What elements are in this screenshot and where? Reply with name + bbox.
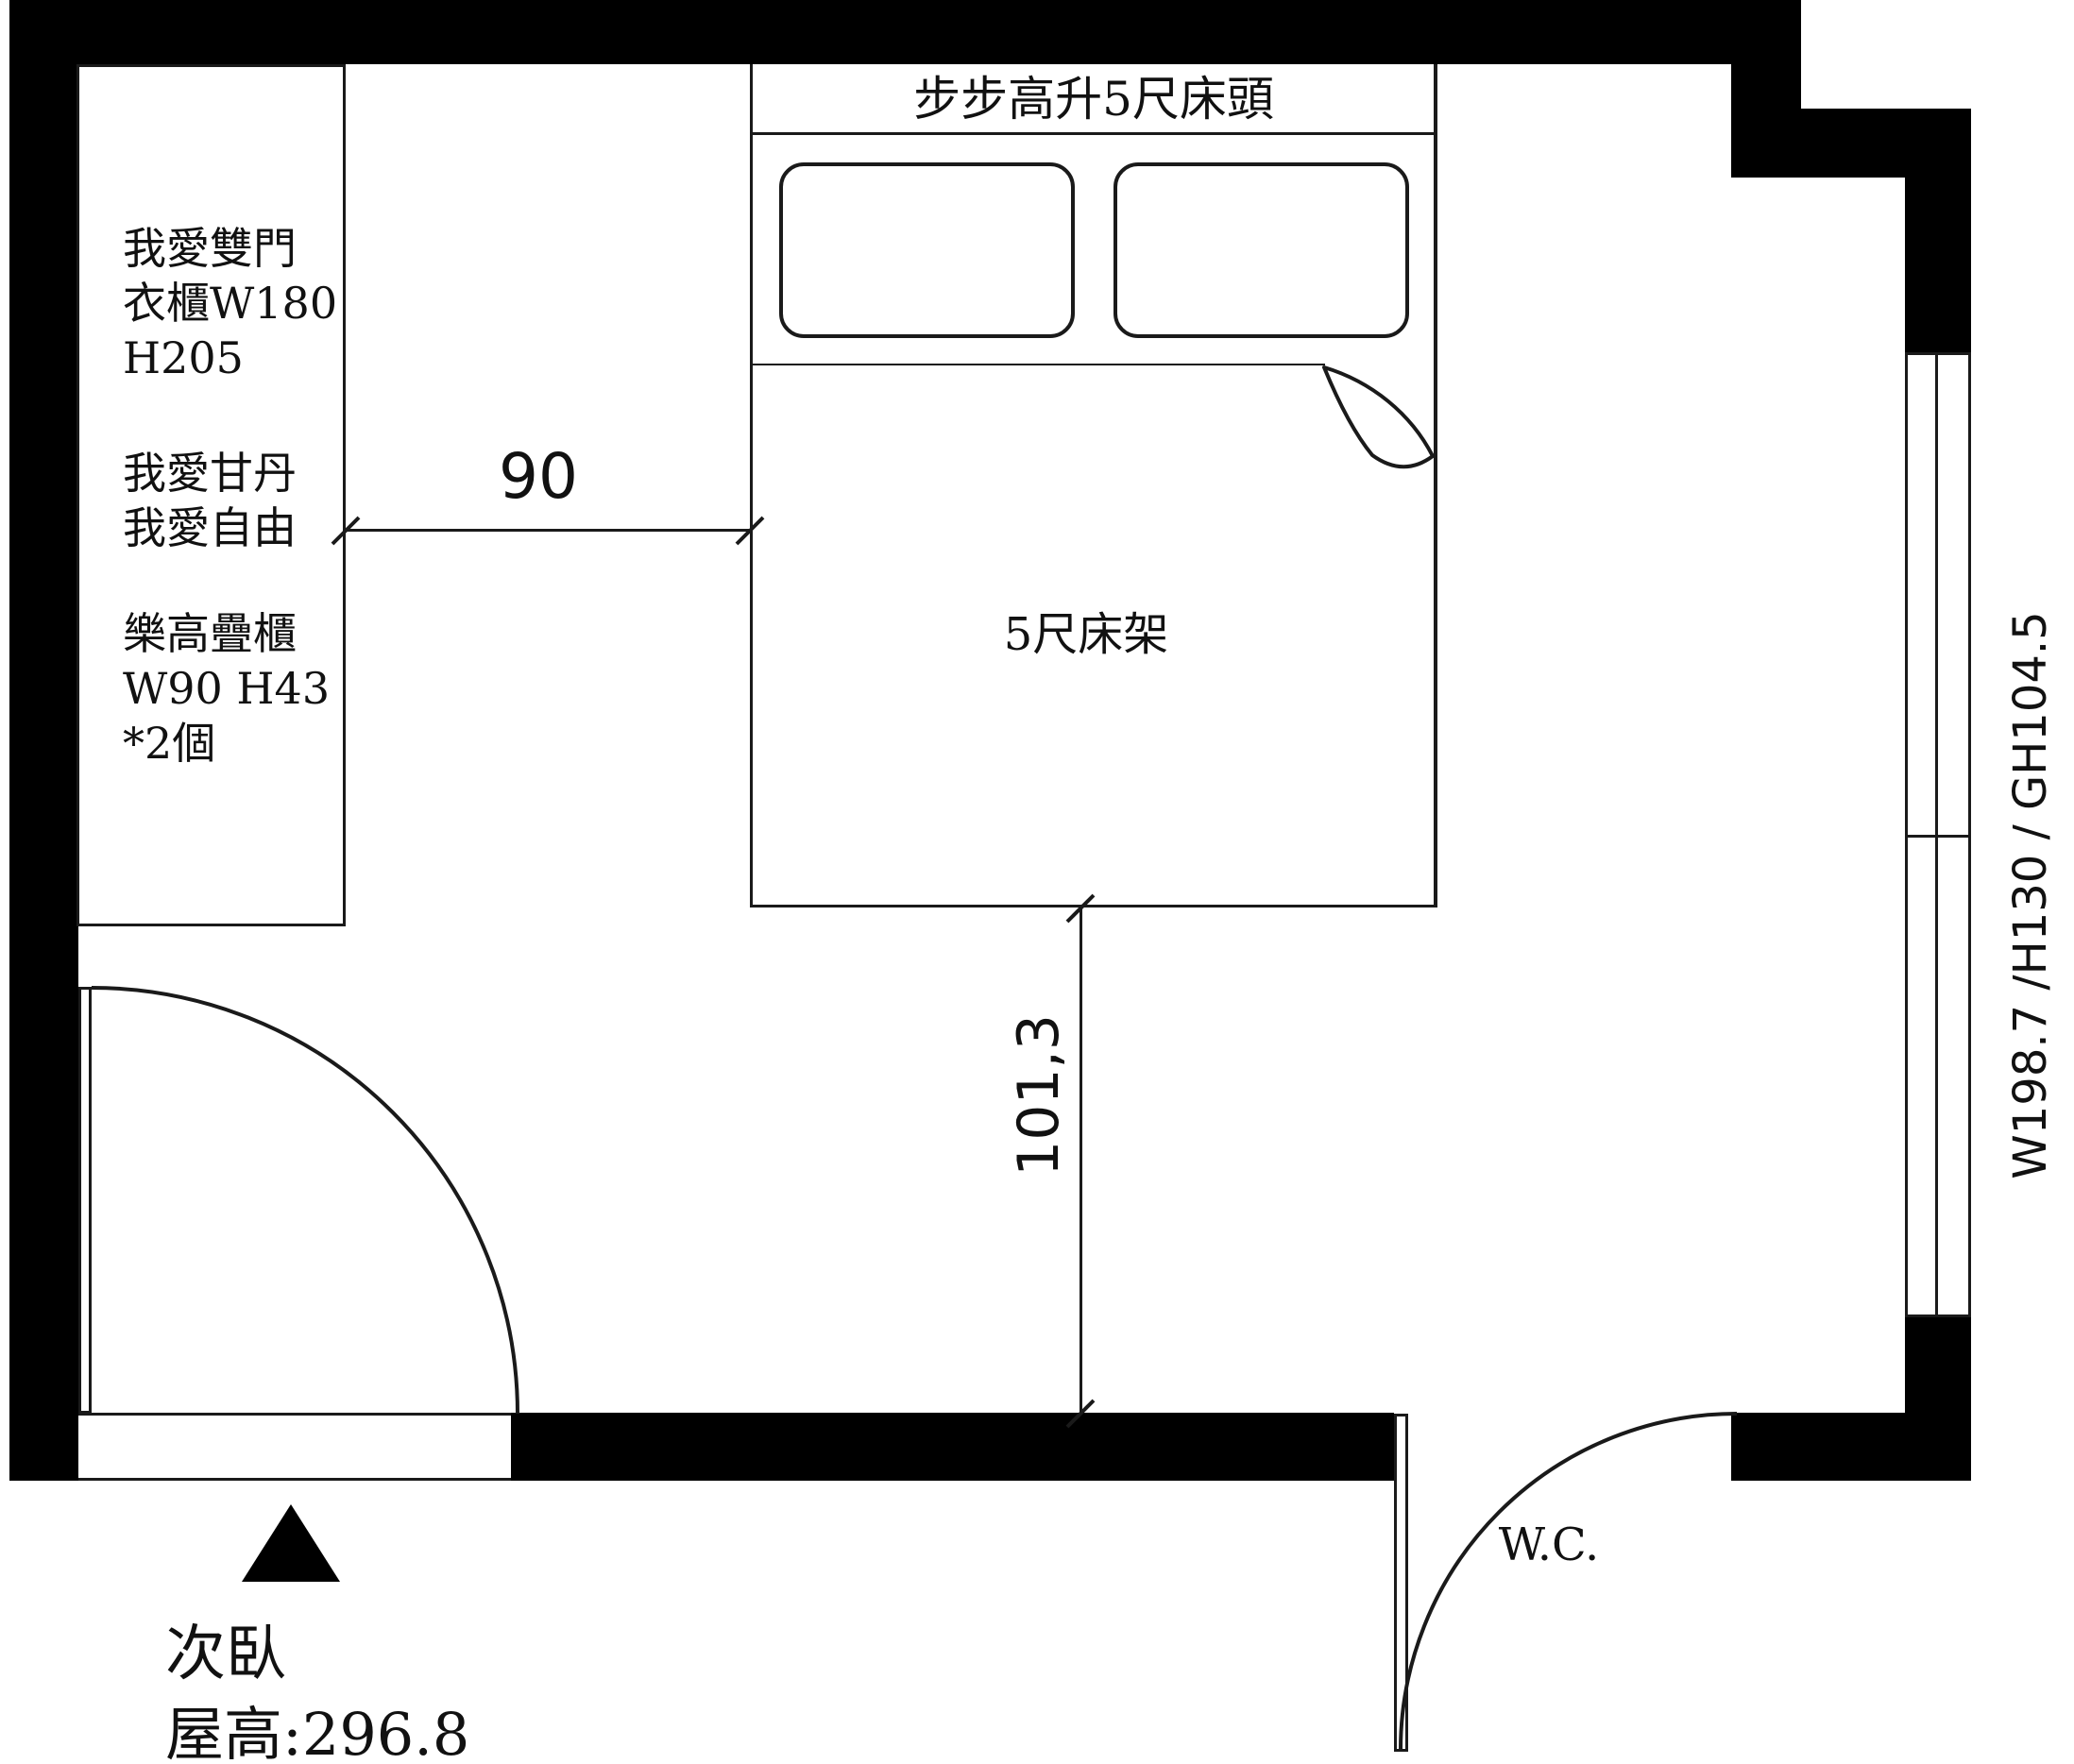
plan-curves-overlay — [0, 0, 2074, 1764]
dim-tick — [1067, 895, 1094, 922]
entry-marker-triangle-icon — [242, 1504, 340, 1582]
wc-door-swing-arc — [1401, 1414, 1737, 1750]
dim-tick — [737, 517, 763, 544]
dim-tick — [332, 517, 359, 544]
floor-plan: 我愛雙門 衣櫃W180 H205 我愛甘丹 我愛自由 樂高疊櫃 W90 H43 … — [0, 0, 2074, 1764]
blanket-fold-icon — [1324, 367, 1433, 466]
dim-tick — [1067, 1400, 1094, 1427]
entry-door-swing-arc — [92, 988, 518, 1414]
